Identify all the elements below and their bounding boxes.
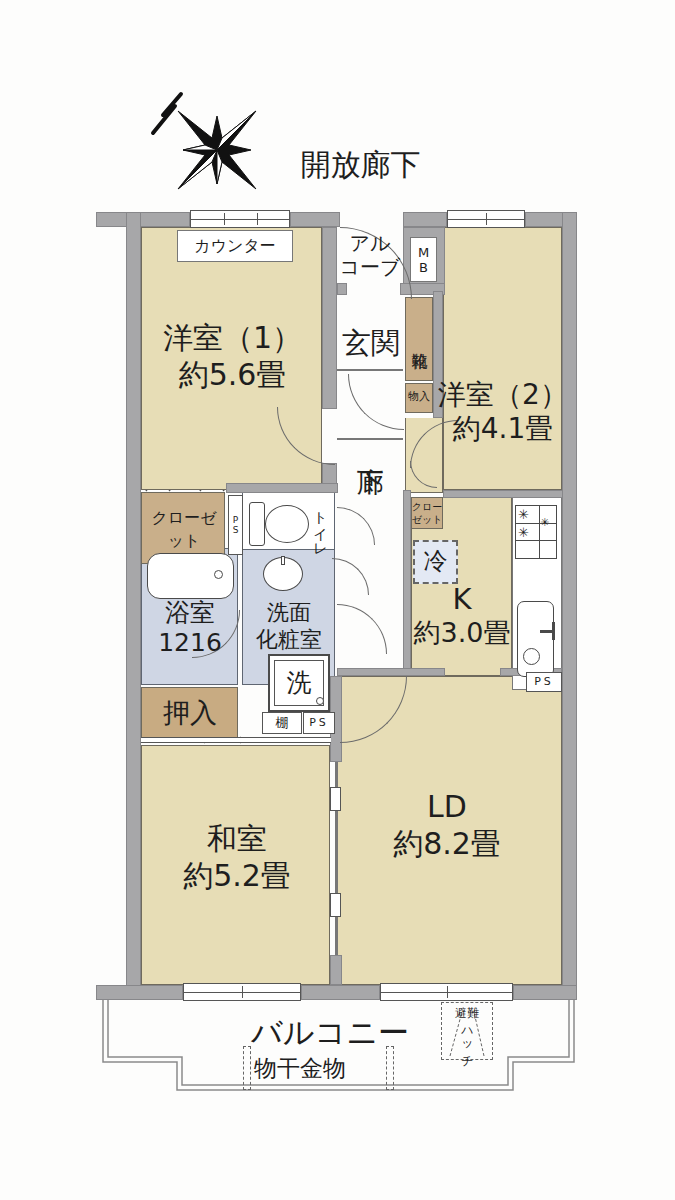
- wall-left: [126, 212, 141, 1000]
- ps-kitchen-label: PS: [526, 672, 562, 692]
- laundry-hardware-label: 物干金物: [248, 1054, 352, 1082]
- western-room-1-label: 洋室（1） 約5.6畳: [150, 312, 315, 402]
- bathtub-drain: [214, 570, 223, 579]
- wall-ld-top-a: [337, 668, 445, 676]
- toilet-tank: [249, 502, 265, 546]
- oshiire-label: 押入: [148, 694, 232, 732]
- meter-box-label: MB: [410, 237, 437, 282]
- window-west1: [190, 210, 290, 228]
- entrance-label: 玄関: [338, 326, 404, 362]
- washroom-label: 洗面 化粧室: [243, 595, 335, 659]
- washbasin-tap: [281, 556, 285, 565]
- kitchen-sink-drain: [523, 648, 540, 665]
- toilet-bowl: [265, 505, 309, 543]
- genkan-step-line: [337, 369, 403, 371]
- open-corridor-label: 開放廊下: [278, 146, 443, 184]
- storage-small-label: 物入: [405, 386, 433, 408]
- wall-sanitary-top: [226, 483, 338, 493]
- sliding-panel-1: [330, 787, 341, 811]
- balcony-label: バルコニー: [230, 1014, 430, 1052]
- laundry-bracket-right: [386, 1046, 394, 1090]
- window-west2: [447, 210, 525, 228]
- shelf-label: 棚: [262, 712, 302, 734]
- compass-north-icon: [153, 94, 256, 189]
- window-japanese-room: [183, 983, 301, 1001]
- window-living-dining: [380, 983, 513, 1001]
- kitchen-label: K 約3.0畳: [406, 578, 518, 654]
- washer-label: 洗: [274, 660, 324, 706]
- floor-plan: ✳ ✳ ✳ 開放廊下 カウンター 洋室（1） 約5.6畳 アル コーブ MB 玄…: [0, 0, 675, 1200]
- shoe-cabinet-label: 靴箱: [407, 312, 431, 368]
- closet-kitchen-label: クローゼット: [411, 499, 443, 527]
- bathroom-label: 浴室 1216: [151, 597, 229, 659]
- closet-west-label: クローゼット: [144, 504, 224, 554]
- living-dining-label: LD 約8.2畳: [357, 782, 537, 870]
- wall-top-3: [403, 212, 447, 227]
- burner-icon: ✳: [518, 507, 529, 522]
- kitchen-faucet: [552, 622, 555, 640]
- wall-right: [562, 212, 577, 1000]
- japanese-room-label: 和室 約5.2畳: [148, 812, 326, 904]
- corridor-door-arc: [337, 604, 387, 654]
- wall-bottom-3: [513, 985, 577, 1000]
- stove: ✳ ✳ ✳: [515, 505, 557, 559]
- escape-hatch-label: 避難 ハッチ: [441, 1004, 493, 1058]
- sliding-panel-2: [330, 893, 341, 917]
- toilet-door-arc: [337, 507, 375, 545]
- ps-left-label: PS: [228, 495, 243, 555]
- wall-west1-east-upper: [322, 227, 337, 409]
- ps-mid-label: PS: [303, 712, 335, 734]
- wall-top-2: [290, 212, 340, 227]
- burner-icon: ✳: [518, 525, 529, 540]
- burner-icon: ✳: [540, 516, 549, 529]
- washroom-door-arc: [332, 558, 369, 595]
- toilet-label: トイレ: [309, 498, 333, 554]
- wall-top-1: [96, 212, 190, 227]
- western-room-2-label: 洋室（2） 約4.1畳: [443, 363, 563, 461]
- kitchen-sink: [517, 601, 554, 677]
- counter-label: カウンター: [177, 230, 293, 262]
- wall-bottom-2: [301, 985, 380, 1000]
- alcove-label: アル コーブ: [338, 229, 402, 281]
- oshiire-sliding-door: [141, 737, 331, 743]
- wall-kitchen-top: [443, 490, 563, 498]
- wall-bottom-1: [96, 985, 183, 1000]
- hallway-label: 廊下: [351, 404, 389, 496]
- wall-divider-bottom: [330, 955, 342, 985]
